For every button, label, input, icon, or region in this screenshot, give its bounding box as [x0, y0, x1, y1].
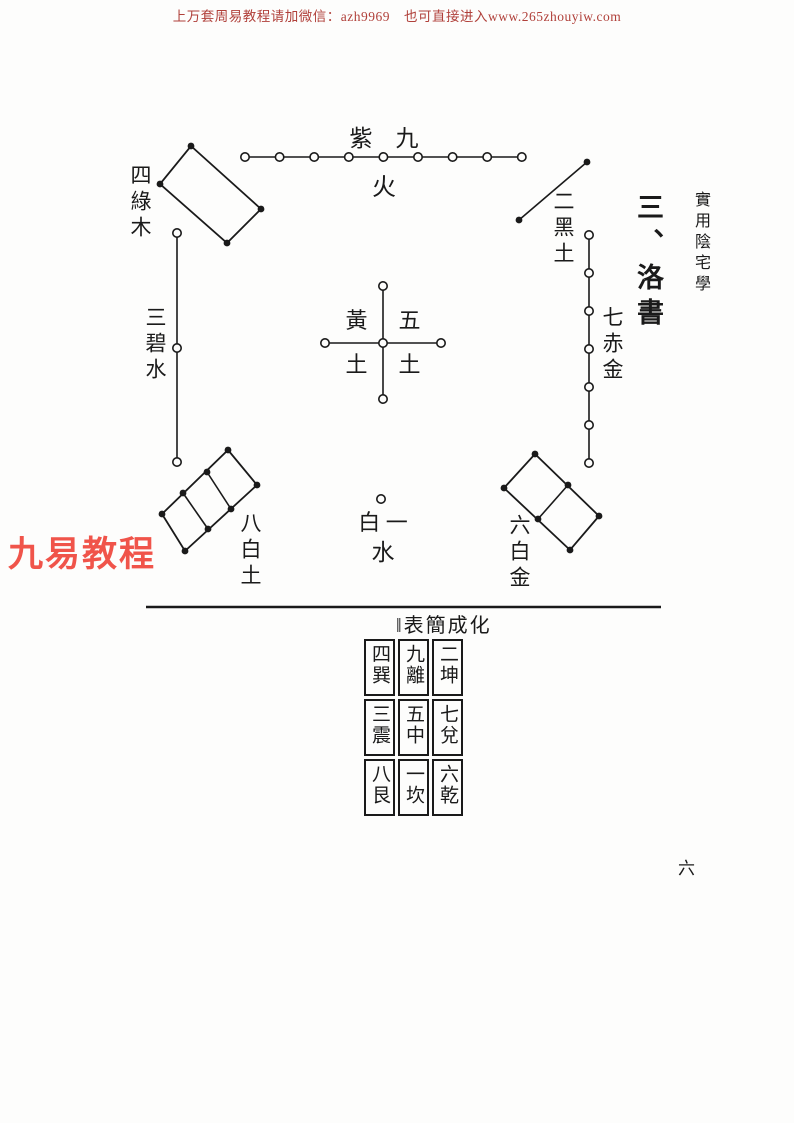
- label-four-green-wood: 四綠木: [125, 164, 155, 242]
- cell-four-xun: 四巽: [364, 639, 395, 696]
- table-row: 三震 五中 七兌: [364, 699, 463, 756]
- cell-eight-gen: 八艮: [364, 759, 395, 816]
- cell-five-zhong: 五中: [398, 699, 429, 756]
- label-two-black-earth: 二黑土: [548, 190, 578, 268]
- book-page: 上万套周易教程请加微信：azh9969 也可直接进入www.265zhouyiw…: [0, 0, 794, 1123]
- label-eight-white-earth: 八白土: [235, 512, 265, 590]
- cell-text: 五中: [400, 704, 427, 746]
- label-three-jade-water: 三碧水: [140, 306, 170, 384]
- cell-text: 一坎: [400, 764, 427, 806]
- cell-text: 四巽: [366, 644, 393, 686]
- label-nine-purple: 紫 九: [338, 119, 430, 153]
- cell-text: 七兌: [434, 704, 461, 746]
- five-char-wu: 五: [383, 297, 436, 341]
- nine-fire-line: [241, 153, 526, 161]
- table-row: 四巽 九離 二坤: [364, 639, 463, 696]
- luoshu-simplified-table: 四巽 九離 二坤 三震 五中 七兌 八艮 一坎 六乾: [361, 636, 466, 819]
- seven-metal-line: [585, 231, 593, 467]
- cell-text: 八艮: [366, 764, 393, 806]
- cell-three-zhen: 三震: [364, 699, 395, 756]
- label-seven-red-metal: 七赤金: [597, 306, 627, 384]
- cell-one-kan: 一坎: [398, 759, 429, 816]
- label-nine-fire: 火: [338, 167, 430, 202]
- label-six-white-metal: 六白金: [504, 514, 534, 592]
- section-heading-luoshu: 三、洛書: [629, 193, 668, 333]
- page-number: 六: [678, 854, 695, 879]
- table-row: 八艮 一坎 六乾: [364, 759, 463, 816]
- five-char-tu-left: 土: [330, 341, 383, 385]
- cell-two-kun: 二坤: [432, 639, 463, 696]
- cell-text: 二坤: [434, 644, 461, 686]
- cell-nine-li: 九離: [398, 639, 429, 696]
- cell-six-qian: 六乾: [432, 759, 463, 816]
- watermark-text: 九易教程: [8, 526, 156, 577]
- table-caption: ‖表簡成化: [396, 609, 492, 638]
- five-char-tu-right: 土: [383, 341, 436, 385]
- cell-seven-dui: 七兌: [432, 699, 463, 756]
- five-char-huang: 黃: [330, 297, 383, 341]
- cell-text: 六乾: [434, 764, 461, 806]
- label-five-yellow-earth: 黃 五 土 土: [330, 297, 436, 385]
- cell-text: 九離: [400, 644, 427, 686]
- label-one-water: 水: [345, 533, 421, 567]
- book-margin-title: 實用陰宅學: [688, 191, 712, 296]
- one-water-dot: [377, 495, 385, 503]
- three-water-line: [173, 229, 181, 466]
- cell-text: 三震: [366, 704, 393, 746]
